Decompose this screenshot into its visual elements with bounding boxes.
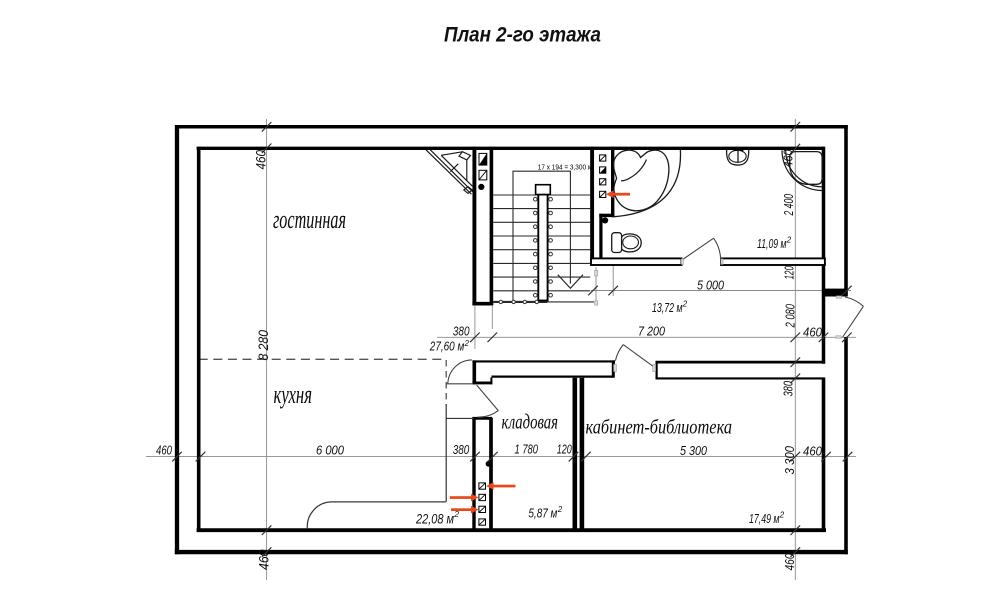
svg-text:2: 2 <box>779 510 785 519</box>
svg-text:11,09 м: 11,09 м <box>757 237 787 251</box>
svg-text:2: 2 <box>453 509 459 519</box>
svg-text:460: 460 <box>780 149 795 168</box>
svg-text:380: 380 <box>453 442 470 457</box>
svg-text:кабинет-библиотека: кабинет-библиотека <box>586 417 733 439</box>
svg-text:5 300: 5 300 <box>680 443 708 458</box>
svg-text:1 780: 1 780 <box>515 443 539 457</box>
svg-text:7 200: 7 200 <box>638 324 666 339</box>
svg-text:27,60 м: 27,60 м <box>429 339 465 353</box>
svg-text:13,72 м: 13,72 м <box>652 301 683 315</box>
svg-text:кладовая: кладовая <box>502 410 559 434</box>
svg-text:2: 2 <box>557 505 563 514</box>
svg-text:6 000: 6 000 <box>316 442 345 457</box>
svg-text:2: 2 <box>682 300 688 309</box>
svg-text:17 х 194 = 3,300 м: 17 х 194 = 3,300 м <box>538 163 593 172</box>
svg-text:460: 460 <box>253 150 268 170</box>
svg-text:17,49 м: 17,49 м <box>749 512 780 526</box>
svg-text:460: 460 <box>256 549 271 570</box>
svg-text:2 080: 2 080 <box>782 303 797 328</box>
svg-text:2: 2 <box>786 236 792 245</box>
svg-text:8 280: 8 280 <box>256 330 271 361</box>
svg-text:120: 120 <box>781 266 796 280</box>
svg-text:460: 460 <box>803 324 823 339</box>
svg-text:460: 460 <box>156 443 173 458</box>
svg-text:380: 380 <box>780 380 795 396</box>
svg-text:План 2-го этажа: План 2-го этажа <box>444 24 601 47</box>
svg-text:2 400: 2 400 <box>781 194 796 217</box>
svg-text:5 000: 5 000 <box>697 278 725 293</box>
svg-text:кухня: кухня <box>274 380 313 409</box>
svg-text:гостинная: гостинная <box>273 205 346 234</box>
svg-text:22,08 м: 22,08 м <box>415 512 454 527</box>
svg-text:5,87 м: 5,87 м <box>528 507 557 521</box>
svg-text:460: 460 <box>782 553 797 571</box>
svg-text:380: 380 <box>453 323 470 338</box>
svg-text:120: 120 <box>557 443 572 457</box>
svg-text:3 300: 3 300 <box>782 445 797 474</box>
svg-text:2: 2 <box>464 339 470 348</box>
svg-text:460: 460 <box>803 443 823 458</box>
